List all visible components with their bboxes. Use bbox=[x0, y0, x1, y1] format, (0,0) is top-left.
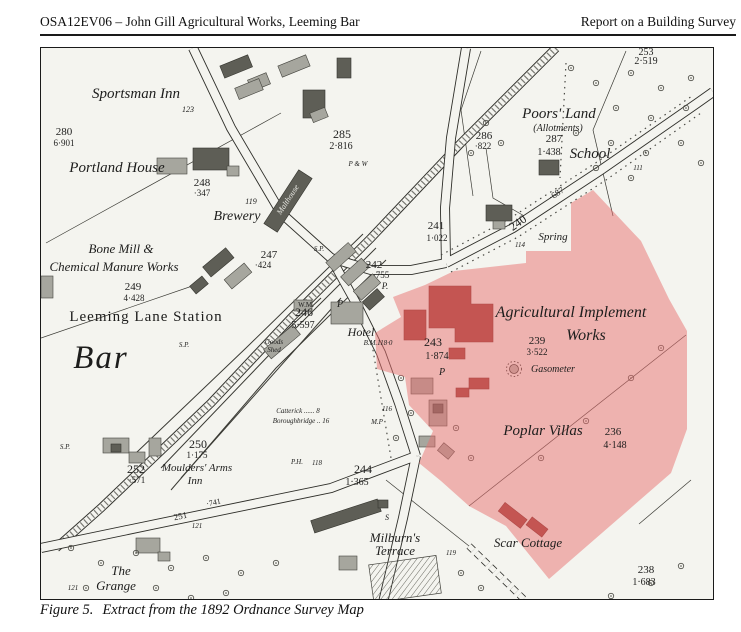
label-250-area: 1·175 bbox=[187, 450, 208, 460]
label-terrace: Terrace bbox=[375, 543, 415, 558]
label-238-area: 1·683 bbox=[632, 577, 655, 588]
label-brewery: Brewery bbox=[214, 209, 262, 224]
label-236: 236 bbox=[605, 426, 622, 438]
label-poors-land: Poors' Land bbox=[521, 106, 596, 122]
label-bm-118: B.M.118·0 bbox=[364, 339, 393, 347]
label-246: 246 bbox=[295, 305, 313, 319]
label-p-2: P bbox=[438, 367, 445, 378]
label-286-area: ·822 bbox=[475, 141, 492, 151]
label-287: 287 bbox=[546, 133, 563, 145]
label-248-area: ·347 bbox=[194, 188, 211, 198]
label-250: 250 bbox=[189, 437, 207, 451]
label-catterick: Catterick ...... 8 bbox=[276, 407, 320, 415]
figure-caption: Figure 5.Extract from the 1892 Ordnance … bbox=[40, 602, 364, 619]
label-school: School bbox=[570, 146, 611, 162]
label-111: 111 bbox=[633, 164, 642, 172]
label-236-area: 4·148 bbox=[603, 440, 626, 451]
label-119-terrace: 119 bbox=[446, 549, 456, 557]
label-246-area: 5·597 bbox=[291, 320, 314, 331]
label-280-area: 6·901 bbox=[54, 138, 75, 148]
label-agricultural-implement: Agricultural Implement bbox=[495, 304, 647, 321]
label-gasometer: Gasometer bbox=[531, 364, 575, 375]
label-249: 249 bbox=[125, 281, 142, 293]
label-goods-shed-1: Goods bbox=[265, 338, 284, 346]
label-bone-mill-1: Bone Mill & bbox=[89, 241, 155, 256]
label-portland-house: Portland House bbox=[68, 160, 165, 176]
label-spring: Spring bbox=[538, 231, 568, 243]
label-241: 241 bbox=[428, 220, 445, 232]
map-figure: Sportsman Inn 123 280 6·901 Portland Hou… bbox=[40, 47, 714, 600]
label-252: 252 bbox=[127, 462, 145, 476]
label-mp: M.P bbox=[370, 418, 384, 426]
figure-number: Figure 5. bbox=[40, 602, 93, 618]
label-sportsman-inn: Sportsman Inn bbox=[92, 86, 180, 102]
label-249-area: 4·428 bbox=[124, 293, 145, 303]
label-grange: Grange bbox=[96, 578, 136, 593]
label-121-a: 121 bbox=[192, 522, 203, 530]
label-scar-cottage: Scar Cottage bbox=[494, 535, 562, 550]
label-goods-shed-2: Shed bbox=[267, 346, 281, 354]
label-123: 123 bbox=[182, 105, 194, 114]
label-121-b: 121 bbox=[68, 584, 79, 592]
os-map-1892: Sportsman Inn 123 280 6·901 Portland Hou… bbox=[41, 48, 713, 599]
label-bar: Bar bbox=[73, 340, 129, 376]
label-253-area: 2·519 bbox=[634, 56, 657, 67]
label-239: 239 bbox=[529, 335, 546, 347]
report-page: { "header": { "left": "OSA12EV06 – John … bbox=[0, 0, 741, 632]
label-hotel: Hotel bbox=[347, 325, 375, 339]
label-118: 118 bbox=[312, 459, 322, 467]
label-119-brewery: 119 bbox=[245, 197, 256, 206]
label-114: 114 bbox=[515, 241, 525, 249]
header-left-title: OSA12EV06 – John Gill Agricultural Works… bbox=[40, 14, 360, 30]
label-the: The bbox=[111, 563, 131, 578]
header-right-title: Report on a Building Survey bbox=[581, 14, 736, 30]
label-s: S bbox=[385, 513, 389, 522]
label-285-area: 2·816 bbox=[329, 141, 352, 152]
label-poplar-villas: Poplar Villas bbox=[502, 423, 582, 439]
label-116: 116 bbox=[382, 405, 392, 413]
label-287-area: 1·438 bbox=[537, 147, 560, 158]
label-p-dot: P. bbox=[381, 281, 389, 291]
label-leeming-lane-station: Leeming Lane Station bbox=[69, 309, 222, 325]
label-247-area: ·424 bbox=[255, 260, 272, 270]
label-243-area: 1·874 bbox=[425, 351, 448, 362]
label-sp-3: S.P. bbox=[60, 443, 71, 451]
label-sp-2: S.P. bbox=[179, 341, 190, 349]
label-moulders-inn: Inn bbox=[187, 475, 203, 487]
label-p-1: P bbox=[336, 299, 343, 310]
label-241-area: 1·022 bbox=[427, 233, 448, 243]
label-sp-1: S.P. bbox=[314, 245, 325, 253]
label-bone-mill-2: Chemical Manure Works bbox=[49, 259, 178, 274]
label-242-area: ·755 bbox=[373, 270, 390, 280]
label-238: 238 bbox=[638, 564, 655, 576]
label-moulders-arms: Moulders' Arms bbox=[161, 462, 232, 474]
label-280: 280 bbox=[56, 126, 73, 138]
label-ph: P.H. bbox=[290, 458, 303, 466]
figure-caption-text: Extract from the 1892 Ordnance Survey Ma… bbox=[102, 602, 363, 618]
label-243: 243 bbox=[424, 335, 442, 349]
page-header: OSA12EV06 – John Gill Agricultural Works… bbox=[40, 10, 736, 36]
label-boroughbridge: Boroughbridge .. 16 bbox=[273, 417, 330, 425]
label-239-area: 3·522 bbox=[527, 347, 548, 357]
label-works: Works bbox=[566, 327, 605, 344]
label-285: 285 bbox=[333, 127, 351, 141]
label-244: 244 bbox=[354, 462, 372, 476]
label-pump-well: P & W bbox=[348, 160, 369, 168]
label-252-area: ·571 bbox=[129, 475, 146, 485]
label-244-area: 1·365 bbox=[345, 477, 368, 488]
